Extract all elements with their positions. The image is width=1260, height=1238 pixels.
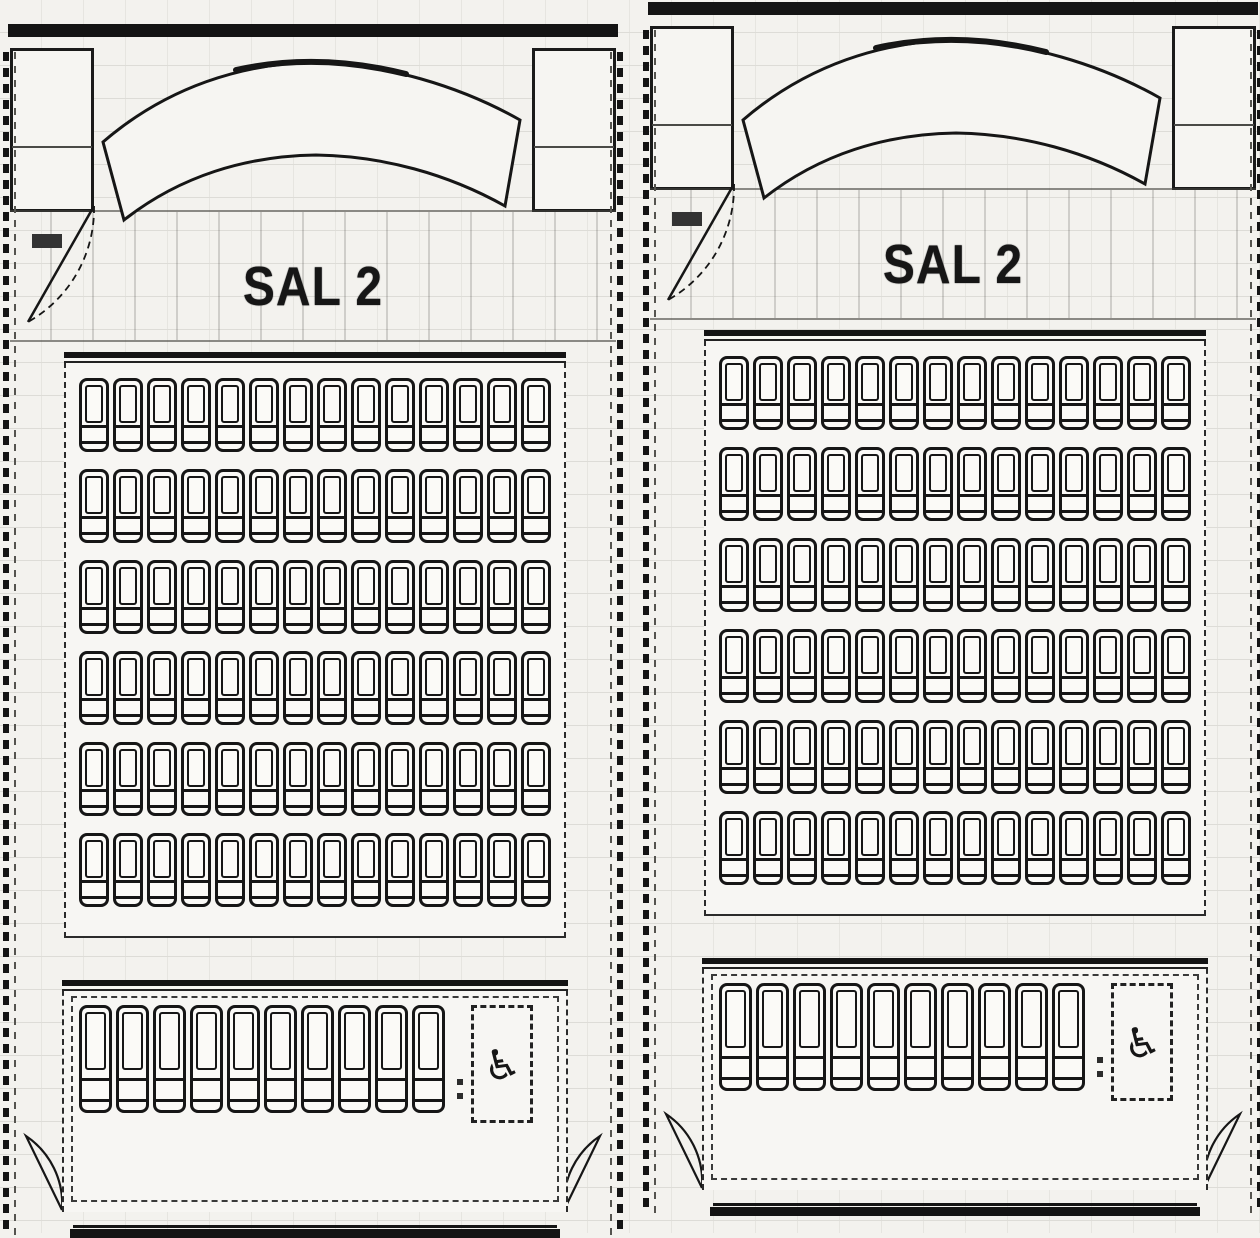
seat xyxy=(79,651,109,725)
door-swing-bottom-right xyxy=(564,1136,600,1210)
seat xyxy=(991,447,1021,521)
main-seating-block xyxy=(64,352,566,938)
hall-name-label: SAL 2 xyxy=(648,234,1258,297)
seat xyxy=(991,811,1021,885)
seat xyxy=(419,560,449,634)
seat xyxy=(249,651,279,725)
seat xyxy=(215,560,245,634)
seat xyxy=(957,720,987,794)
seat xyxy=(1015,983,1048,1091)
door-swing-bottom-right xyxy=(1204,1114,1240,1188)
seating-block-wall xyxy=(64,352,566,358)
seat xyxy=(957,629,987,703)
seat xyxy=(1127,447,1157,521)
seat xyxy=(351,742,381,816)
seat xyxy=(978,983,1011,1091)
seat xyxy=(1093,356,1123,430)
seat xyxy=(283,378,313,452)
seat xyxy=(487,378,517,452)
seat-grid xyxy=(706,336,1204,885)
seat xyxy=(719,720,749,794)
seat xyxy=(957,356,987,430)
front-block-wall xyxy=(702,958,1208,964)
seat xyxy=(351,833,381,907)
seat xyxy=(1127,720,1157,794)
seat xyxy=(923,720,953,794)
seat-grid xyxy=(66,358,564,907)
seat xyxy=(249,742,279,816)
seat xyxy=(283,469,313,543)
seat xyxy=(1059,629,1089,703)
floor-plan-left: SAL 2 ♿ xyxy=(8,24,618,1235)
seat xyxy=(215,651,245,725)
seat xyxy=(889,720,919,794)
seat xyxy=(487,560,517,634)
seat xyxy=(317,560,347,634)
seat xyxy=(923,356,953,430)
seat xyxy=(147,742,177,816)
seat xyxy=(153,1005,186,1113)
seat xyxy=(1059,811,1089,885)
door-post xyxy=(32,234,62,248)
seat xyxy=(991,720,1021,794)
seat xyxy=(147,651,177,725)
seat xyxy=(1093,720,1123,794)
seat xyxy=(957,447,987,521)
seat xyxy=(1093,811,1123,885)
seat xyxy=(821,629,851,703)
bottom-wall xyxy=(710,1207,1200,1216)
seat xyxy=(904,983,937,1091)
seat xyxy=(1059,538,1089,612)
wheelchair-space: ♿ xyxy=(471,1005,533,1123)
seat-row xyxy=(72,469,558,543)
door-post xyxy=(672,212,702,226)
seat xyxy=(753,356,783,430)
front-seating-block: ♿ xyxy=(702,958,1208,1190)
seat xyxy=(821,447,851,521)
seat xyxy=(1161,447,1191,521)
seat xyxy=(419,742,449,816)
main-seating-block xyxy=(704,330,1206,916)
seat xyxy=(283,742,313,816)
seat xyxy=(419,469,449,543)
seat xyxy=(719,447,749,521)
seat xyxy=(181,378,211,452)
left-wall-dashed xyxy=(3,52,9,1235)
seat xyxy=(991,356,1021,430)
seat xyxy=(521,651,551,725)
bottom-wall xyxy=(70,1229,560,1238)
seat xyxy=(1161,629,1191,703)
seat xyxy=(283,651,313,725)
seat xyxy=(338,1005,371,1113)
seat xyxy=(719,629,749,703)
seat xyxy=(453,833,483,907)
front-seating-block: ♿ xyxy=(62,980,568,1212)
seat xyxy=(1059,447,1089,521)
seat xyxy=(787,538,817,612)
seat xyxy=(1093,629,1123,703)
seat xyxy=(385,378,415,452)
seat xyxy=(264,1005,297,1113)
seat xyxy=(215,469,245,543)
seat xyxy=(787,356,817,430)
seat xyxy=(116,1005,149,1113)
seat xyxy=(1025,811,1055,885)
seat xyxy=(301,1005,334,1113)
seat xyxy=(957,538,987,612)
seat xyxy=(385,560,415,634)
seat xyxy=(521,378,551,452)
seat xyxy=(889,356,919,430)
wheelchair-icon: ♿ xyxy=(480,1037,524,1091)
seat xyxy=(351,378,381,452)
seat xyxy=(1127,629,1157,703)
seat xyxy=(113,469,143,543)
seat xyxy=(1161,811,1191,885)
wheelchair-space: ♿ xyxy=(1111,983,1173,1101)
seat-row xyxy=(72,378,558,452)
seat xyxy=(521,833,551,907)
seat xyxy=(1025,356,1055,430)
seat xyxy=(113,651,143,725)
seat xyxy=(79,833,109,907)
seat xyxy=(453,742,483,816)
seat-row xyxy=(712,538,1198,612)
seat xyxy=(1161,356,1191,430)
seat xyxy=(317,378,347,452)
seat xyxy=(1059,720,1089,794)
seat xyxy=(181,833,211,907)
seat xyxy=(1161,720,1191,794)
seat xyxy=(855,356,885,430)
seat xyxy=(941,983,974,1091)
seat xyxy=(753,629,783,703)
seat xyxy=(889,538,919,612)
seat xyxy=(1093,538,1123,612)
front-seat-row xyxy=(79,1005,445,1113)
seat xyxy=(113,742,143,816)
floor-plan-right: SAL 2 ♿ xyxy=(648,2,1258,1213)
seat xyxy=(215,833,245,907)
seat xyxy=(79,1005,112,1113)
seat xyxy=(147,833,177,907)
seat xyxy=(719,811,749,885)
seat xyxy=(867,983,900,1091)
seat xyxy=(283,833,313,907)
seat xyxy=(147,378,177,452)
seat xyxy=(821,720,851,794)
seat xyxy=(756,983,789,1091)
seat xyxy=(249,833,279,907)
seat-row xyxy=(72,742,558,816)
seat xyxy=(753,811,783,885)
seat xyxy=(1161,538,1191,612)
seat xyxy=(453,560,483,634)
seat xyxy=(317,469,347,543)
seat xyxy=(227,1005,260,1113)
seat xyxy=(821,811,851,885)
seat xyxy=(855,720,885,794)
seat xyxy=(283,560,313,634)
seat xyxy=(923,811,953,885)
aisle-mark xyxy=(457,1079,463,1099)
seat xyxy=(1127,356,1157,430)
seat xyxy=(889,447,919,521)
seat xyxy=(855,538,885,612)
seat xyxy=(419,651,449,725)
right-wall-dashed xyxy=(617,52,623,1235)
seat xyxy=(385,833,415,907)
seat xyxy=(1127,538,1157,612)
seat-row xyxy=(712,811,1198,885)
seat xyxy=(787,629,817,703)
seat xyxy=(957,811,987,885)
seat xyxy=(889,811,919,885)
seat xyxy=(249,469,279,543)
cinema-screen xyxy=(103,62,520,220)
seat xyxy=(855,447,885,521)
seat xyxy=(923,538,953,612)
seat xyxy=(385,469,415,543)
seat xyxy=(453,651,483,725)
door-swing-bottom-left xyxy=(666,1114,702,1188)
wheelchair-icon: ♿ xyxy=(1120,1015,1164,1069)
seat xyxy=(317,833,347,907)
seat xyxy=(889,629,919,703)
seat xyxy=(855,629,885,703)
seat xyxy=(351,469,381,543)
front-seat-row xyxy=(719,983,1085,1091)
seat xyxy=(753,538,783,612)
seat xyxy=(719,538,749,612)
seat-row xyxy=(712,356,1198,430)
hall-name-label: SAL 2 xyxy=(8,256,618,319)
seat xyxy=(453,469,483,543)
seat xyxy=(830,983,863,1091)
seat xyxy=(181,651,211,725)
seating-block-wall xyxy=(704,330,1206,336)
seat xyxy=(385,651,415,725)
seat xyxy=(215,742,245,816)
front-row-area: ♿ xyxy=(711,974,1199,1180)
seat xyxy=(855,811,885,885)
seat xyxy=(719,356,749,430)
seat xyxy=(79,378,109,452)
seat xyxy=(79,560,109,634)
seat xyxy=(521,560,551,634)
seat xyxy=(113,833,143,907)
seat xyxy=(487,742,517,816)
seat xyxy=(991,629,1021,703)
seat xyxy=(787,811,817,885)
seat-row xyxy=(72,560,558,634)
seat-row xyxy=(712,720,1198,794)
left-wall-dashed xyxy=(643,30,649,1213)
seat xyxy=(419,378,449,452)
front-row-area: ♿ xyxy=(71,996,559,1202)
seat xyxy=(923,629,953,703)
seat xyxy=(412,1005,445,1113)
seat xyxy=(375,1005,408,1113)
seat xyxy=(113,378,143,452)
seat xyxy=(419,833,449,907)
aisle-mark xyxy=(1097,1057,1103,1077)
seat xyxy=(923,447,953,521)
seat xyxy=(521,469,551,543)
seat-row xyxy=(72,833,558,907)
seat xyxy=(1059,356,1089,430)
seat xyxy=(487,651,517,725)
seat xyxy=(787,720,817,794)
seat xyxy=(753,447,783,521)
seat xyxy=(1025,447,1055,521)
seat xyxy=(351,560,381,634)
seat xyxy=(190,1005,223,1113)
seat xyxy=(1127,811,1157,885)
seat xyxy=(1093,447,1123,521)
seat xyxy=(1025,720,1055,794)
door-swing-bottom-left xyxy=(26,1136,62,1210)
seat xyxy=(719,983,752,1091)
seat xyxy=(147,560,177,634)
seat-row xyxy=(712,447,1198,521)
front-block-wall xyxy=(62,980,568,986)
seat xyxy=(113,560,143,634)
seat xyxy=(487,833,517,907)
seat xyxy=(821,356,851,430)
seat xyxy=(351,651,381,725)
seat xyxy=(753,720,783,794)
seat xyxy=(991,538,1021,612)
seat xyxy=(181,742,211,816)
seat xyxy=(317,651,347,725)
seat xyxy=(521,742,551,816)
seat xyxy=(147,469,177,543)
seat-row xyxy=(712,629,1198,703)
seat-row xyxy=(72,651,558,725)
seat xyxy=(181,469,211,543)
seat xyxy=(787,447,817,521)
cinema-screen xyxy=(743,40,1160,198)
seat xyxy=(317,742,347,816)
seat xyxy=(1052,983,1085,1091)
seat xyxy=(821,538,851,612)
seat xyxy=(249,378,279,452)
seat xyxy=(79,469,109,543)
seat xyxy=(793,983,826,1091)
seat xyxy=(385,742,415,816)
seat xyxy=(249,560,279,634)
seat xyxy=(1025,629,1055,703)
seat xyxy=(487,469,517,543)
seat xyxy=(181,560,211,634)
seat xyxy=(79,742,109,816)
seat xyxy=(215,378,245,452)
seat xyxy=(1025,538,1055,612)
seat xyxy=(453,378,483,452)
